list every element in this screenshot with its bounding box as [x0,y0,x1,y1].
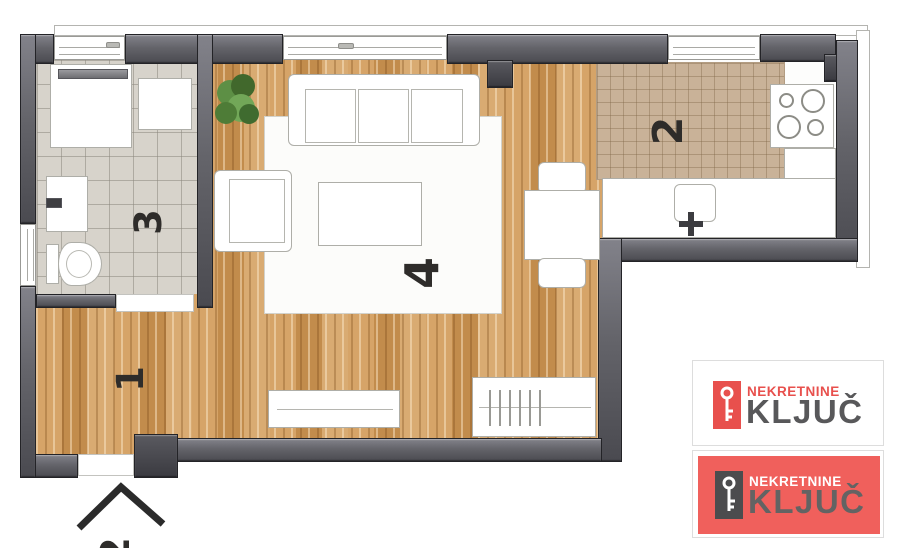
kitchen-counter-bottom [602,178,836,238]
plant-leaf [239,104,259,124]
sofa-cushion [305,89,356,143]
wall-kitchen-bottom [620,238,858,262]
armchair [214,170,292,252]
wall-right [836,40,858,262]
entrance-door [78,454,134,476]
washing-machine [138,78,192,130]
dining-chair-bottom [538,258,586,288]
radiator [472,377,596,437]
key-icon [713,381,741,429]
bathroom-window [54,36,125,60]
wall-left-upper [20,34,36,224]
logo-name-text: KLJUČ [748,487,866,517]
radiator-fins [489,390,547,426]
room-label-hall: 1 [107,357,153,401]
floorplan-canvas: 3 4 2 1 [0,0,900,548]
sideboard [268,390,400,428]
window-handle-icon [106,42,120,48]
living-room-window [283,36,447,60]
burner [807,119,824,136]
wall-pillar-stub [487,60,513,88]
wall-bathroom-bottom [36,294,116,308]
key-icon [715,471,743,519]
logo-card-light: NEKRETNINE KLJUČ [692,360,884,446]
sideboard-line [277,409,393,410]
balcony-ledge-right [856,30,870,268]
stove [770,84,834,148]
window-handle-icon [338,43,354,49]
entrance-arrow-icon [70,480,172,536]
burner [779,93,794,108]
kitchen-sink [674,184,716,222]
wall-bathroom-right [197,34,213,308]
plant-leaf [215,102,237,124]
potted-plant [213,72,263,130]
room-label-bathroom: 3 [126,198,170,246]
room-label-kitchen: 2 [642,109,694,153]
sofa-cushion [411,89,463,143]
bathroom-door [116,294,194,312]
bathroom-side-window [20,224,36,286]
sink-faucet-icon [679,221,703,227]
logo-name-text: KLJUČ [746,397,864,427]
entrance-unit-label: 2 [93,529,139,548]
logo-card-red: NEKRETNINE KLJUČ [692,450,884,538]
burner [777,115,801,139]
coffee-table [318,182,422,246]
wall-east-lower [598,238,622,462]
sofa-cushion [358,89,409,143]
kitchen-window [668,36,760,60]
wall-step-block [134,434,178,478]
wall-bottom [176,438,602,462]
armchair-seat [229,179,285,243]
wall-top-2 [447,34,668,64]
vanity-faucet-icon [46,198,62,208]
towel-radiator [58,69,128,79]
burner [801,89,825,113]
sofa [288,74,480,146]
wall-left-lower [20,286,36,478]
toilet-bowl-inner [66,250,92,278]
dining-table [524,190,600,260]
room-label-living: 4 [395,247,449,299]
